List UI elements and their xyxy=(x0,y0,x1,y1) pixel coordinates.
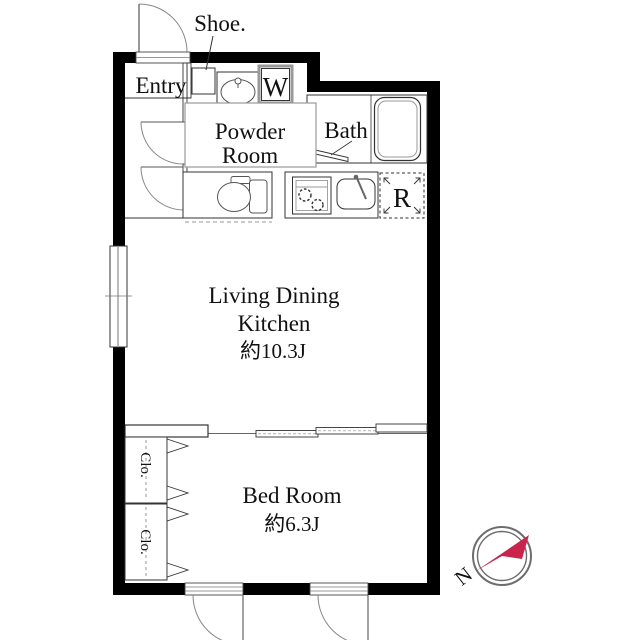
closet-top-label: Clo. xyxy=(137,452,153,477)
entry-door-swing-arc xyxy=(139,4,187,52)
wall-bottom-right xyxy=(368,583,440,595)
floorplan-drawing: Shoe. Entry W Powder Room Bath R Living … xyxy=(0,0,640,640)
sink-faucet-base xyxy=(354,175,359,180)
closet-door-arrow-3 xyxy=(167,507,188,521)
ldk-label-line1: Living Dining xyxy=(209,283,340,308)
closet-door-arrow-4 xyxy=(167,563,188,577)
window-frame xyxy=(110,246,127,347)
fridge-label: R xyxy=(393,183,411,213)
bedroom-size-label: 約6.3J xyxy=(264,512,319,536)
bath-label: Bath xyxy=(324,118,368,143)
balcony-door-right-threshold xyxy=(310,583,368,595)
ldk-label-line2: Kitchen xyxy=(238,311,311,336)
bathtub xyxy=(375,98,421,161)
toilet-bowl xyxy=(218,183,251,212)
stove-outer xyxy=(293,177,332,214)
ldk-size-label: 約10.3J xyxy=(240,339,306,363)
toilet-room-door xyxy=(141,167,183,210)
compass xyxy=(473,527,531,585)
shoe-label: Shoe. xyxy=(194,11,246,36)
powder-room-label-line1: Powder xyxy=(215,119,286,144)
closet-door-arrow-2 xyxy=(167,486,188,500)
powder-room-door xyxy=(141,122,183,164)
kitchen-counter xyxy=(285,172,378,218)
wall-bottom-mid xyxy=(243,583,310,595)
sliding-door-divider xyxy=(125,424,427,437)
divider-wall-box xyxy=(125,425,208,437)
wall-bottom-left xyxy=(113,583,185,595)
basin-faucet xyxy=(235,78,241,84)
toilet-door-swing-arc xyxy=(141,167,183,210)
wall-top-right xyxy=(307,81,440,92)
toilet-room xyxy=(183,172,272,222)
closets xyxy=(125,437,188,580)
washer-label: W xyxy=(263,72,289,102)
balcony-door-right xyxy=(310,583,368,640)
balcony-door-left xyxy=(185,583,243,640)
kitchen-sink xyxy=(337,179,375,209)
sliding-panel-3 xyxy=(376,424,427,432)
closet-bottom-label: Clo. xyxy=(137,529,153,554)
balcony-door-left-threshold xyxy=(185,583,243,595)
shoe-cabinet xyxy=(192,36,215,94)
entry-label: Entry xyxy=(135,73,187,98)
balcony-right-swing-arc xyxy=(318,595,368,640)
entry-side-wall xyxy=(187,63,191,98)
toilet-tank xyxy=(250,180,268,213)
shoe-cabinet-box xyxy=(192,68,215,94)
entry-door xyxy=(136,4,190,63)
bedroom-label: Bed Room xyxy=(242,483,341,508)
balcony-left-swing-arc xyxy=(193,595,243,640)
left-window xyxy=(105,246,132,347)
wall-right xyxy=(427,81,440,595)
closet-door-arrow-1 xyxy=(167,439,188,453)
compass-north-label: N xyxy=(450,562,477,590)
powder-room-label-line2: Room xyxy=(222,143,278,168)
powder-door-swing-arc xyxy=(141,122,183,164)
floorplan-canvas: Shoe. Entry W Powder Room Bath R Living … xyxy=(0,0,640,640)
